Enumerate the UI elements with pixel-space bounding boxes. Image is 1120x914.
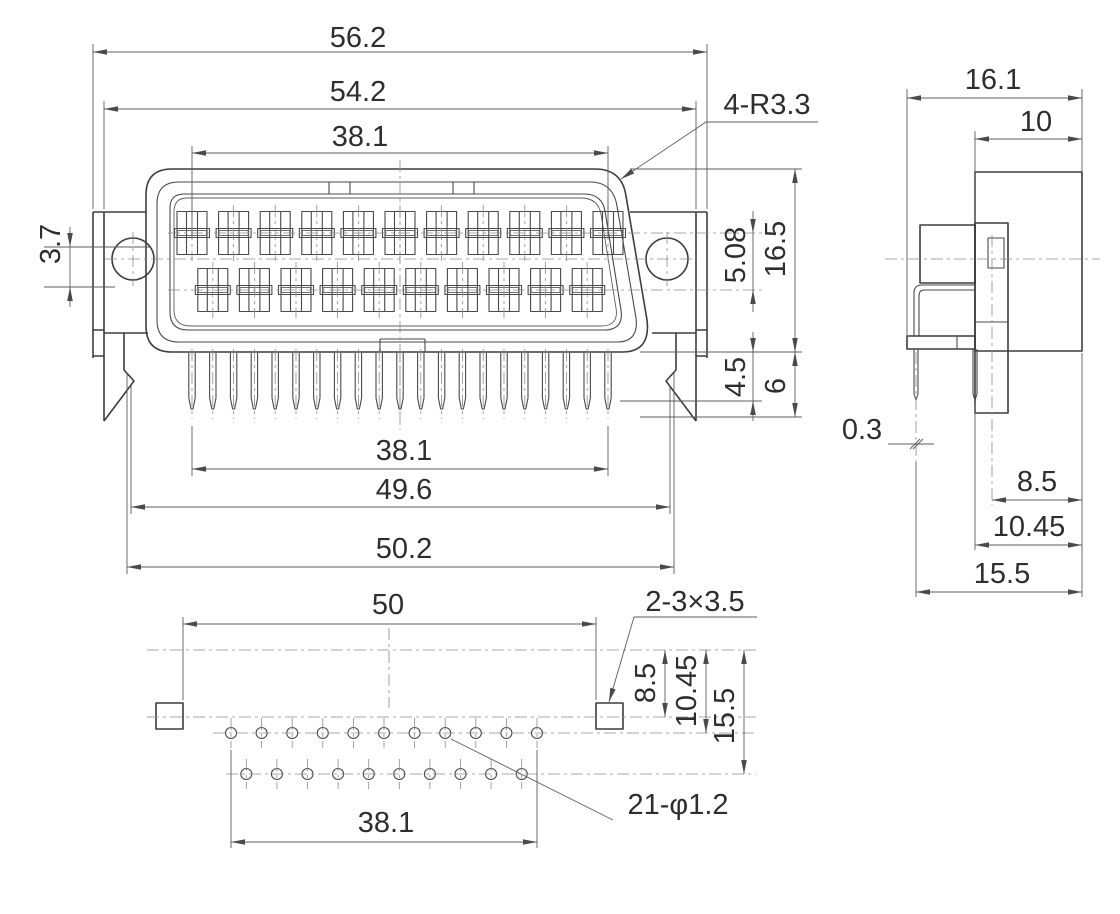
dim-side-overall-depth: 16.1: [965, 64, 1021, 96]
pin: [272, 349, 278, 419]
dim-front-shell-height: 16.5: [760, 221, 792, 277]
pin: [293, 349, 299, 419]
mounting-ear-right: [630, 212, 707, 421]
corner-radius-leader: [621, 122, 818, 179]
pin: [584, 349, 590, 419]
side-latch-window: [988, 238, 1004, 268]
dim-front-contact-span: 38.1: [332, 121, 388, 153]
pin: [563, 349, 569, 419]
dim-bottom-hole-note: 21-φ1.2: [627, 789, 728, 821]
pin: [230, 349, 236, 419]
dim-side-body-depth: 10: [1020, 106, 1052, 138]
dim-front-foot-span-outer: 50.2: [376, 533, 432, 565]
pin: [438, 349, 444, 419]
pin: [459, 349, 465, 419]
dim-front-ear-offset: 3.7: [35, 224, 67, 264]
mounting-ear-left: [93, 212, 154, 421]
connector-shell: [146, 169, 647, 352]
pin: [334, 349, 340, 419]
pin: [418, 349, 424, 419]
pin-offset-dim: [888, 439, 934, 449]
shell-key-tabs: [329, 182, 474, 352]
hole-leader: [451, 739, 613, 820]
dim-side-pin-offset: 0.3: [842, 414, 882, 446]
side-flange: [907, 336, 975, 349]
pin: [480, 349, 486, 419]
side-view: 16.1 10 0.3 8.5 10.45 15.5: [842, 64, 1100, 597]
scart-connector-technical-drawing: 56.2 54.2 38.1 3.7 4-R3.3 5.08 16.5 4.5 …: [0, 0, 1120, 909]
pin: [355, 349, 361, 419]
mounting-slot-left: [156, 703, 183, 729]
dim-bottom-slot-note: 2-3×3.5: [645, 586, 744, 618]
dim-front-row-spacing: 5.08: [720, 227, 752, 283]
front-dimension-lines: [70, 52, 818, 567]
front-view: 56.2 54.2 38.1 3.7 4-R3.3 5.08 16.5 4.5 …: [35, 22, 818, 574]
dim-side-row-a: 8.5: [1017, 466, 1057, 498]
pin: [210, 349, 216, 419]
pin: [189, 349, 195, 419]
dim-front-pin-shoulder: 4.5: [720, 357, 752, 397]
dim-bottom-hole-span: 38.1: [358, 807, 414, 839]
dim-bottom-row-a: 8.5: [630, 663, 662, 703]
dim-front-pin-length: 6: [760, 378, 792, 394]
pin: [542, 349, 548, 419]
dim-side-row-b: 10.45: [993, 511, 1066, 543]
pin: [251, 349, 257, 419]
dim-front-body-width: 54.2: [330, 76, 386, 108]
pin: [522, 349, 528, 419]
mounting-slot-right: [596, 703, 623, 729]
side-centerlines: [885, 235, 1100, 505]
dim-front-corner-radius: 4-R3.3: [723, 89, 810, 121]
dim-front-pin-span: 38.1: [376, 435, 432, 467]
dim-side-row-c: 15.5: [974, 558, 1030, 590]
dim-bottom-row-c: 15.5: [709, 688, 741, 744]
bottom-view: 50 2-3×3.5 8.5 10.45 15.5 38.1 21-φ1.2: [147, 586, 757, 848]
pin: [605, 349, 611, 419]
drawing-canvas: 56.2 54.2 38.1 3.7 4-R3.3 5.08 16.5 4.5 …: [0, 0, 1120, 909]
side-bracket: [914, 285, 975, 336]
dim-bottom-slot-span: 50: [372, 589, 404, 621]
pin: [314, 349, 320, 419]
dim-front-overall-width: 56.2: [330, 22, 386, 54]
dim-front-foot-span-inner: 49.6: [376, 474, 432, 506]
side-latch-block: [920, 225, 975, 283]
side-front-plate: [975, 223, 1008, 413]
pin: [376, 349, 382, 419]
side-body: [907, 172, 1082, 413]
dim-bottom-row-b: 10.45: [671, 655, 703, 728]
pin: [501, 349, 507, 419]
